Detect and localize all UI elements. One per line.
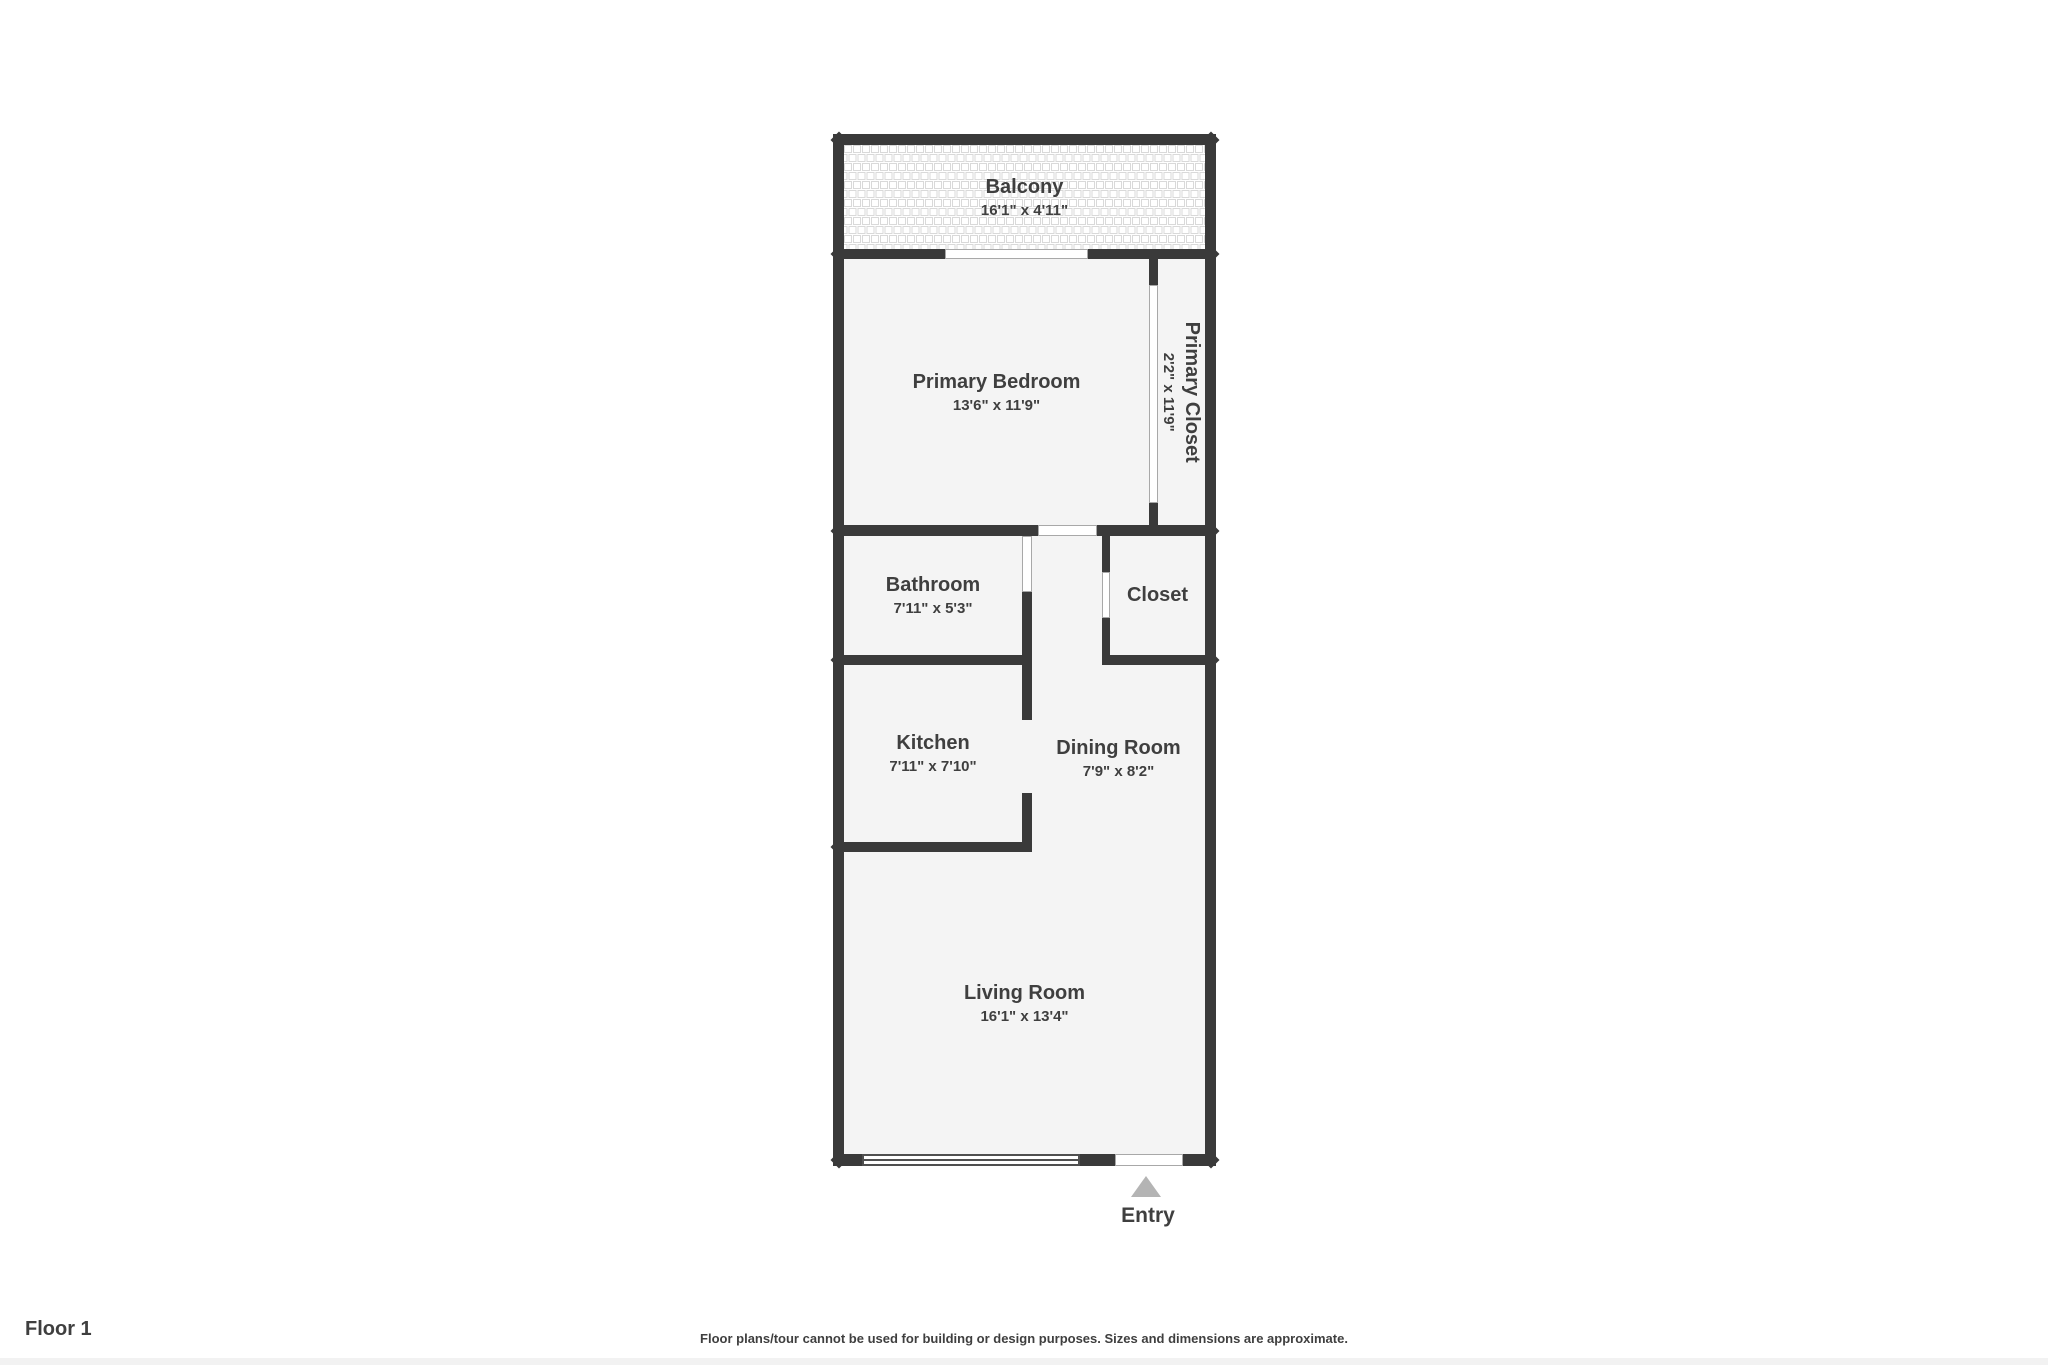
entry-door-opening: [1115, 1154, 1183, 1166]
bedroom-door-opening: [1038, 525, 1097, 536]
closet-door: [1102, 572, 1110, 618]
wall-bathroom-bottom: [833, 655, 1032, 665]
wall-left-exterior: [833, 134, 844, 1166]
bottom-edge-strip: [0, 1358, 2048, 1365]
wall-top-exterior: [833, 134, 1216, 145]
living-room-window: [862, 1154, 1080, 1166]
entry-label: Entry: [1098, 1204, 1198, 1228]
wall-right-exterior: [1205, 134, 1216, 1166]
balcony-door-opening: [945, 249, 1088, 259]
wall-kitchen-bottom: [833, 842, 1032, 852]
balcony-tile-pattern: [844, 145, 1205, 249]
entry-arrow-icon: [1131, 1176, 1161, 1197]
wall-closet-bottom: [1102, 655, 1216, 665]
floor-plan: Balcony 16'1" x 4'11" Primary Bedroom 13…: [833, 134, 1216, 1166]
disclaimer-text: Floor plans/tour cannot be used for buil…: [0, 1331, 2048, 1346]
primary-closet-door: [1149, 285, 1158, 503]
bathroom-door: [1022, 536, 1032, 592]
kitchen-pass-opening: [1022, 720, 1032, 793]
balcony-floor-area: [844, 145, 1205, 249]
